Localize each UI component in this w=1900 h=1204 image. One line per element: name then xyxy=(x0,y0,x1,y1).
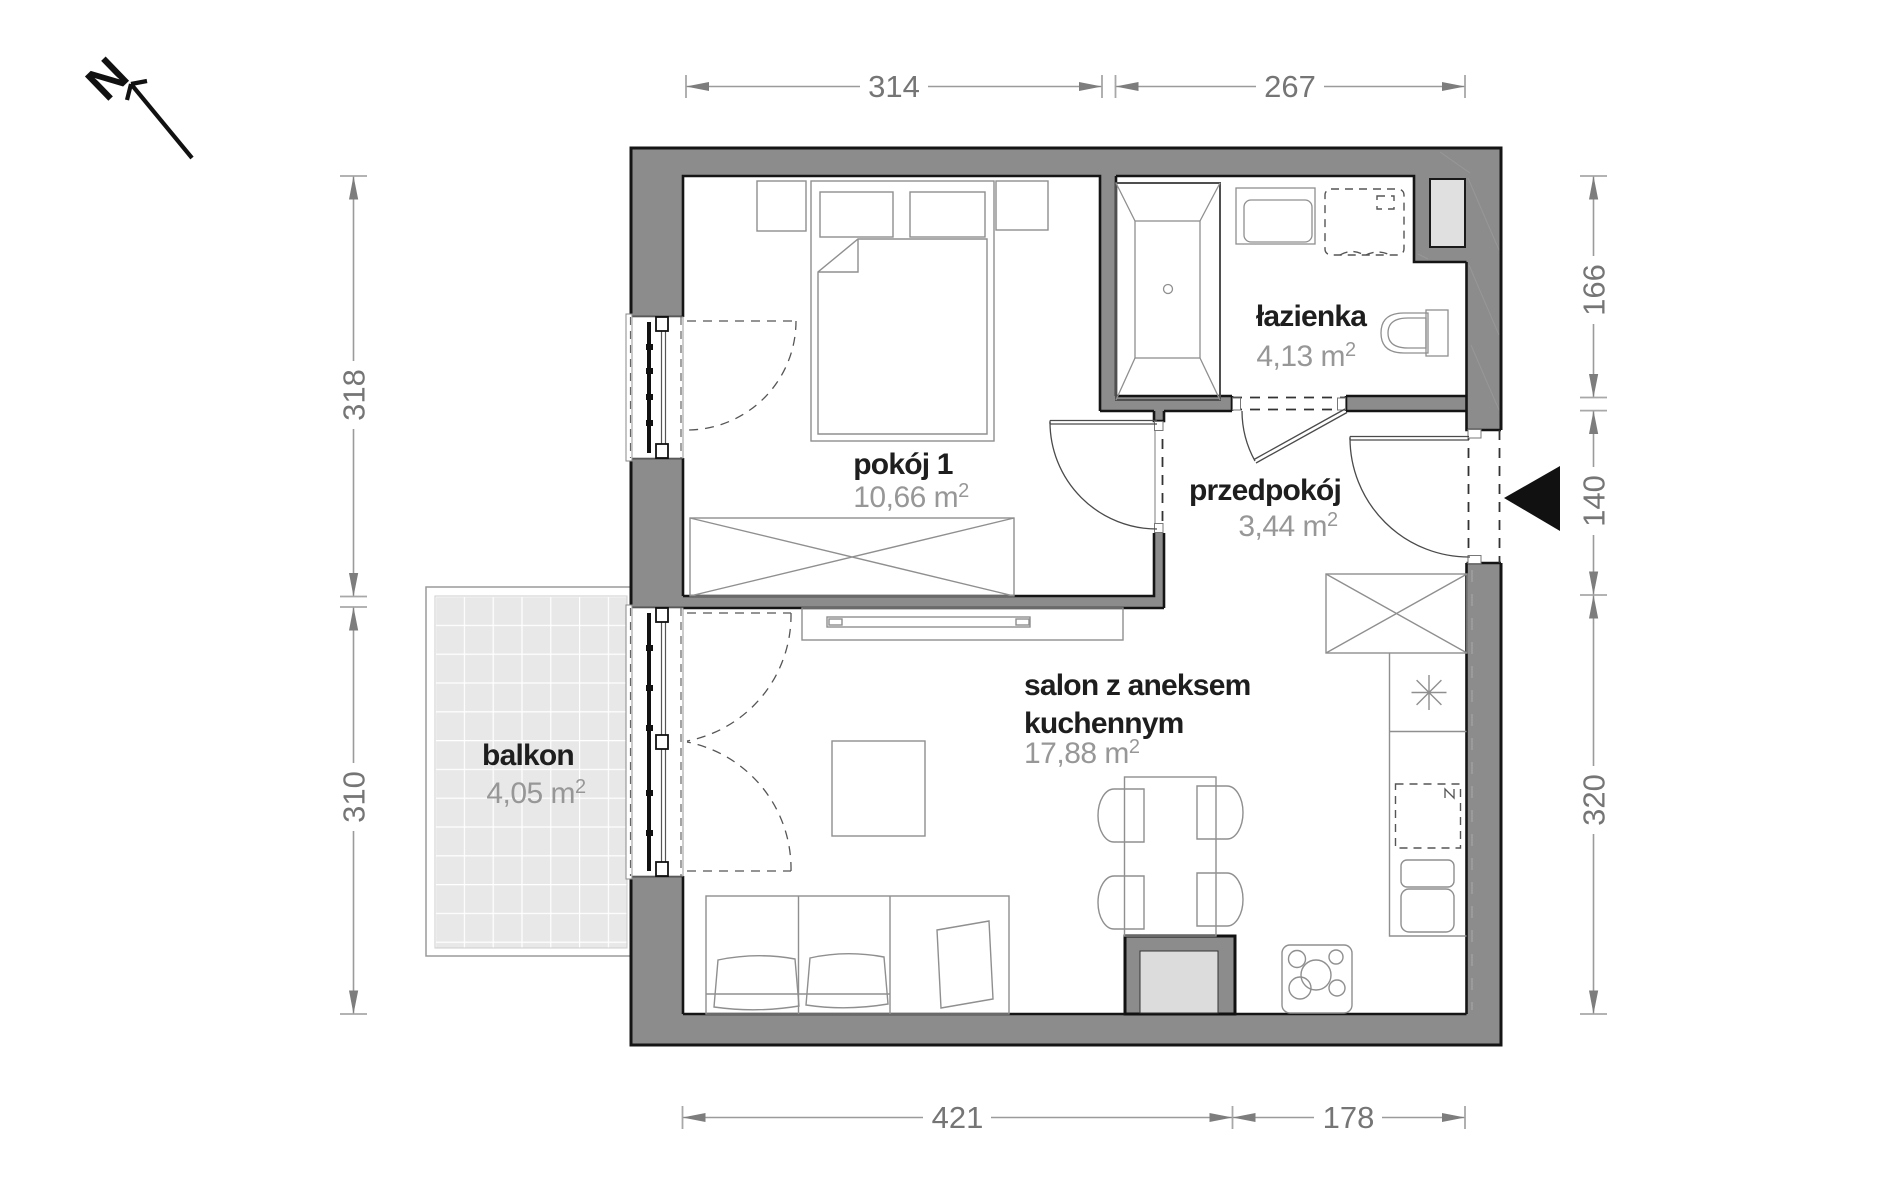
svg-text:balkon: balkon xyxy=(482,739,574,772)
svg-text:17,88 m2: 17,88 m2 xyxy=(1024,736,1140,770)
svg-text:3,44 m2: 3,44 m2 xyxy=(1238,509,1338,543)
svg-text:pokój 1: pokój 1 xyxy=(853,448,953,481)
svg-text:310: 310 xyxy=(337,771,372,823)
svg-text:318: 318 xyxy=(337,369,372,421)
svg-text:kuchennym: kuchennym xyxy=(1024,707,1184,740)
svg-text:140: 140 xyxy=(1577,475,1612,527)
svg-text:166: 166 xyxy=(1577,264,1612,316)
svg-text:314: 314 xyxy=(868,69,920,104)
svg-text:320: 320 xyxy=(1577,774,1612,826)
svg-text:267: 267 xyxy=(1264,69,1316,104)
svg-text:przedpokój: przedpokój xyxy=(1189,474,1341,507)
svg-text:178: 178 xyxy=(1323,1100,1375,1135)
svg-text:salon z aneksem: salon z aneksem xyxy=(1024,669,1250,702)
svg-text:421: 421 xyxy=(932,1100,984,1135)
svg-text:4,05 m2: 4,05 m2 xyxy=(486,776,586,810)
svg-text:łazienka: łazienka xyxy=(1256,300,1367,333)
svg-text:10,66 m2: 10,66 m2 xyxy=(853,480,969,514)
svg-text:4,13 m2: 4,13 m2 xyxy=(1256,339,1356,373)
